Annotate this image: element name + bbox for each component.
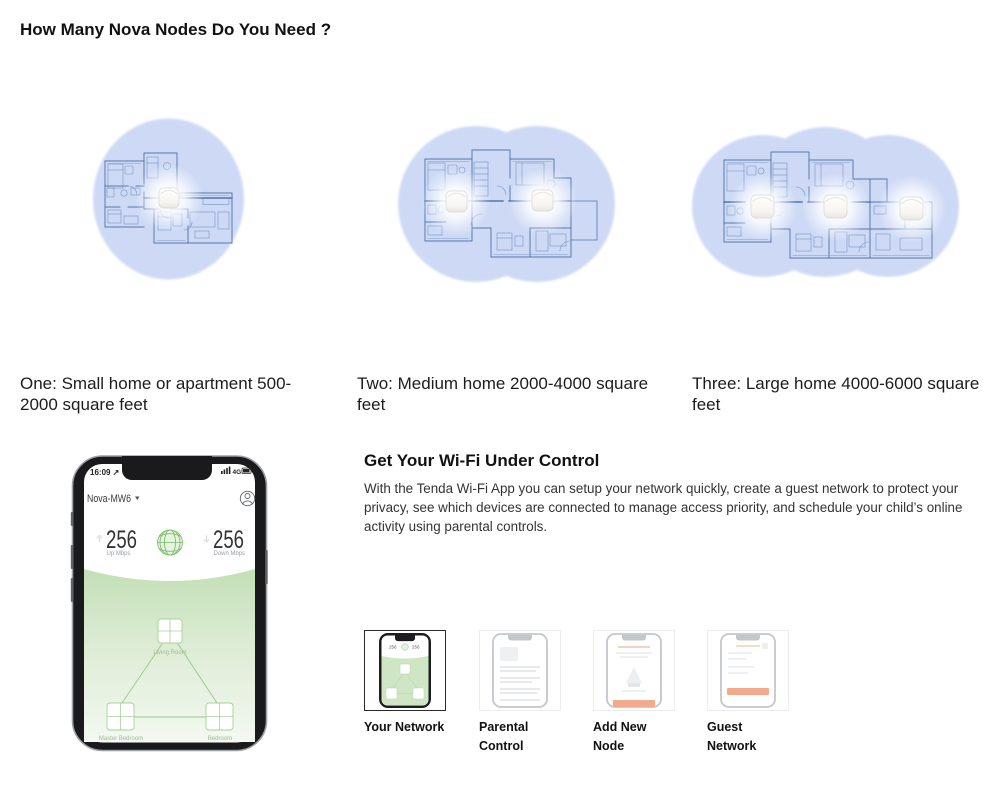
svg-text:256: 256 — [389, 645, 397, 650]
svg-text:256: 256 — [412, 645, 420, 650]
svg-text:256: 256 — [213, 526, 244, 554]
svg-text:Living Room: Living Room — [153, 650, 186, 656]
svg-text:Up Mbps: Up Mbps — [107, 551, 131, 557]
svg-text:4G: 4G — [233, 469, 242, 476]
svg-text:256: 256 — [106, 526, 137, 554]
svg-text:Bedroom: Bedroom — [208, 736, 232, 742]
svg-text:Nova-MW6: Nova-MW6 — [87, 493, 131, 505]
svg-text:Down Mbps: Down Mbps — [214, 551, 246, 557]
svg-text:16:09 ↗: 16:09 ↗ — [90, 468, 119, 477]
svg-text:Master Bedroom: Master Bedroom — [99, 736, 143, 742]
